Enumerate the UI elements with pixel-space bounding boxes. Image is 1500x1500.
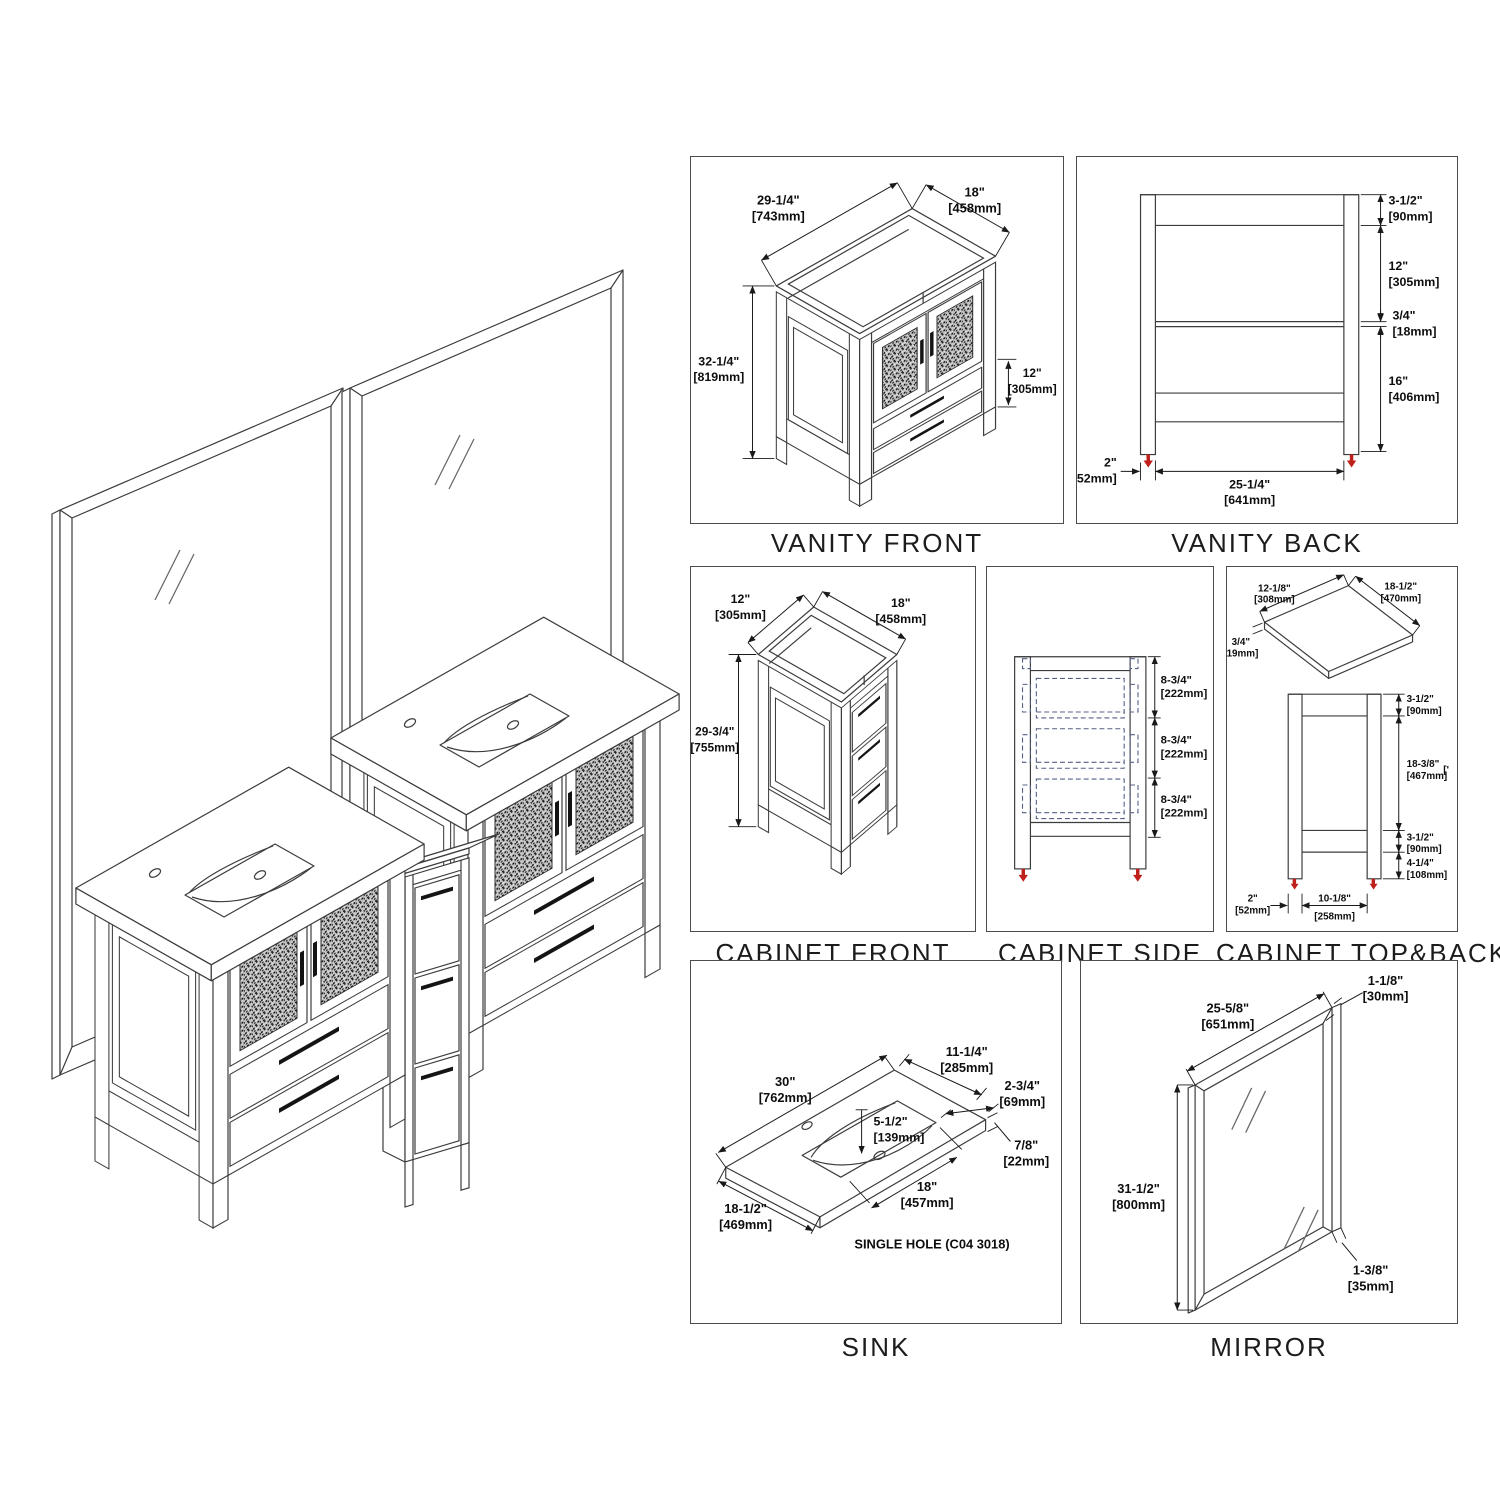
dim-height-in: 32-1/4" [698,354,739,368]
door-handle [313,941,317,977]
leveler-foot [1347,455,1356,468]
dim-width-mm: [651mm] [1201,1016,1254,1031]
leveler-foot [1019,869,1028,882]
dim-height-mm: [755mm] [691,740,739,754]
dim-loweropen-in: 16" [1388,374,1408,388]
dim-dooropen-mm: [305mm] [1388,275,1439,289]
panel-title-mirror: MIRROR [1080,1332,1458,1363]
dim-depth-in: 18" [964,185,984,200]
door-handle [555,800,559,836]
dim-legwidth-in: 2" [1104,455,1117,469]
vanity-set-drawing [35,255,685,1345]
dim-toprail-mm: [90mm] [1388,209,1432,223]
dim-bottomrail-in: 3-1/2" [1407,832,1434,843]
dim-topthick-in: 3/4" [1232,637,1251,648]
dim-shelf-in: 3/4" [1392,309,1415,323]
dim-corner-in: 2-3/4" [1005,1078,1040,1093]
dim-innerwidth-mm: [258mm] [1314,911,1355,922]
panel-vanity-back: 3-1/2" [90mm] 12" [305mm] 3/4" [18mm] 16… [1076,156,1458,524]
dim-topdepth-mm2: [470mm] [1380,593,1421,604]
dim-depth-mm: [458mm] [875,612,926,626]
dim-width-mm: [305mm] [715,608,766,622]
dim-dooropen-in: 12" [1388,259,1408,273]
dim-shelf-mm: [18mm] [1392,325,1436,339]
dim-backledge-in: 11-1/4" [946,1044,988,1059]
dim-frame-in: 1-1/8" [1368,973,1403,988]
panel-title-vanity-front: VANITY FRONT [690,528,1064,559]
dim-topthick-mm: [19mm] [1227,649,1258,660]
dim-legwidth-mm: [52mm] [1235,905,1270,916]
dim-depth-in: 1-3/8" [1353,1262,1388,1277]
sink-note: SINGLE HOLE (C04 3018) [854,1237,1009,1252]
dim-legheight-mm: [108mm] [1407,870,1448,881]
dim-frame-mm: [30mm] [1363,989,1409,1004]
technical-drawing-sheet: 29-1/4" [743mm] 18" [458mm] 32-1/4" [819… [0,0,1500,1500]
dim-basindepth-in: 5-1/2" [874,1115,908,1129]
dim-height-in: 31-1/2" [1117,1181,1160,1196]
cabinet-top-back-drawing: 12-1/8" [308mm] 18-1/2" [470mm] 3/4" [19… [1227,567,1456,930]
dim-width-in: 25-5/8" [1207,1001,1250,1016]
dim-drawer1-in: 8-3/4" [1161,674,1192,686]
vanity-back-drawing: 3-1/2" [90mm] 12" [305mm] 3/4" [18mm] 16… [1077,157,1456,522]
panel-vanity-front: 29-1/4" [743mm] 18" [458mm] 32-1/4" [819… [690,156,1064,524]
leveler-foot [1370,879,1378,890]
dim-drawer3-in: 8-3/4" [1161,794,1192,806]
panel-cabinet-top-back: 12-1/8" [308mm] 18-1/2" [470mm] 3/4" [19… [1226,566,1458,932]
leveler-foot [1133,869,1142,882]
dim-opening-in: 18-3/8" [1407,759,1440,770]
dim-thickness-in: 7/8" [1014,1137,1038,1152]
dim-legwidth-in: 2" [1248,893,1258,904]
dim-thickness-mm: [22mm] [1003,1153,1049,1168]
dim-width-in: 29-1/4" [757,193,800,208]
panel-sink: 5-1/2" [139mm] 30" [762mm] 11-1/4" [285m… [690,960,1062,1324]
dim-toprail-in: 3-1/2" [1388,194,1422,208]
door-handle [568,791,572,827]
dim-depth-mm: [35mm] [1348,1278,1394,1293]
mirror-drawing: 25-5/8" [651mm] 1-1/8" [30mm] 31-1/2" [8… [1081,961,1456,1322]
stray-mark: [' [1443,765,1449,776]
dim-drawer1-mm: [222mm] [1161,688,1208,700]
door-handle [930,331,933,357]
dim-toprail-mm: [90mm] [1407,706,1442,717]
dim-corner-mm: [69mm] [999,1094,1045,1109]
leveler-foot [1291,879,1299,890]
dim-drawer2-in: 8-3/4" [1161,735,1192,747]
sink-drawing: 5-1/2" [139mm] 30" [762mm] 11-1/4" [285m… [691,961,1060,1322]
dim-drawer2-mm: [222mm] [1161,748,1208,760]
dim-width-mm: [762mm] [759,1090,812,1105]
dim-opening-mm: [467mm] [1407,771,1448,782]
dim-height-mm: [819mm] [693,370,744,384]
panel-cabinet-front: 12" [305mm] 18" [458mm] 29-3/4" [755mm] [690,566,976,932]
dim-innerwidth-in: 10-1/8" [1318,893,1351,904]
dim-drawer-mm: [305mm] [1008,382,1057,396]
dim-drawer-in: 12" [1023,366,1042,380]
dim-backledge-mm: [285mm] [940,1060,993,1075]
dim-depth-in: 18-1/2" [724,1201,767,1216]
dim-legheight-in: 4-1/4" [1407,858,1434,869]
dim-height-in: 29-3/4" [695,725,734,739]
dim-innerwidth-in: 25-1/4" [1229,477,1270,491]
dim-height-mm: [800mm] [1112,1197,1165,1212]
dim-depth-mm: [469mm] [719,1217,772,1232]
door-handle [300,950,304,986]
dim-basindepth-mm: [139mm] [874,1131,925,1145]
dim-width-in: 12" [731,592,751,606]
dim-depth-mm: [458mm] [948,201,1001,216]
dim-topwidth-in: 12-1/8" [1258,584,1291,595]
vanity-front-drawing: 29-1/4" [743mm] 18" [458mm] 32-1/4" [819… [691,157,1062,522]
panel-title-sink: SINK [690,1332,1062,1363]
panel-cabinet-side: 8-3/4" [222mm] 8-3/4" [222mm] 8-3/4" [22… [986,566,1214,932]
dim-basinwidth-mm: [457mm] [901,1195,954,1210]
cabinet-side-drawing: 8-3/4" [222mm] 8-3/4" [222mm] 8-3/4" [22… [987,567,1212,930]
dim-toprail-in: 3-1/2" [1407,694,1434,705]
dim-bottomrail-mm: [90mm] [1407,844,1442,855]
dim-depth-in: 18" [891,596,911,610]
dim-loweropen-mm: [406mm] [1388,390,1439,404]
dim-topdepth-in: 18-1/2" [1384,582,1417,593]
panel-title-vanity-back: VANITY BACK [1076,528,1458,559]
dim-topwidth-mm: [308mm] [1254,594,1295,605]
dim-innerwidth-mm: [641mm] [1224,493,1275,507]
dim-width-mm: [743mm] [752,208,805,223]
leveler-foot [1144,455,1153,468]
dim-legwidth-mm: [52mm] [1077,471,1117,485]
cabinet-front-drawing: 12" [305mm] 18" [458mm] 29-3/4" [755mm] [691,567,974,930]
dim-basinwidth-in: 18" [917,1179,937,1194]
dim-width-in: 30" [775,1074,795,1089]
isometric-illustration [35,255,685,1345]
panel-mirror: 25-5/8" [651mm] 1-1/8" [30mm] 31-1/2" [8… [1080,960,1458,1324]
dim-drawer3-mm: [222mm] [1161,808,1208,820]
door-handle [920,339,923,365]
